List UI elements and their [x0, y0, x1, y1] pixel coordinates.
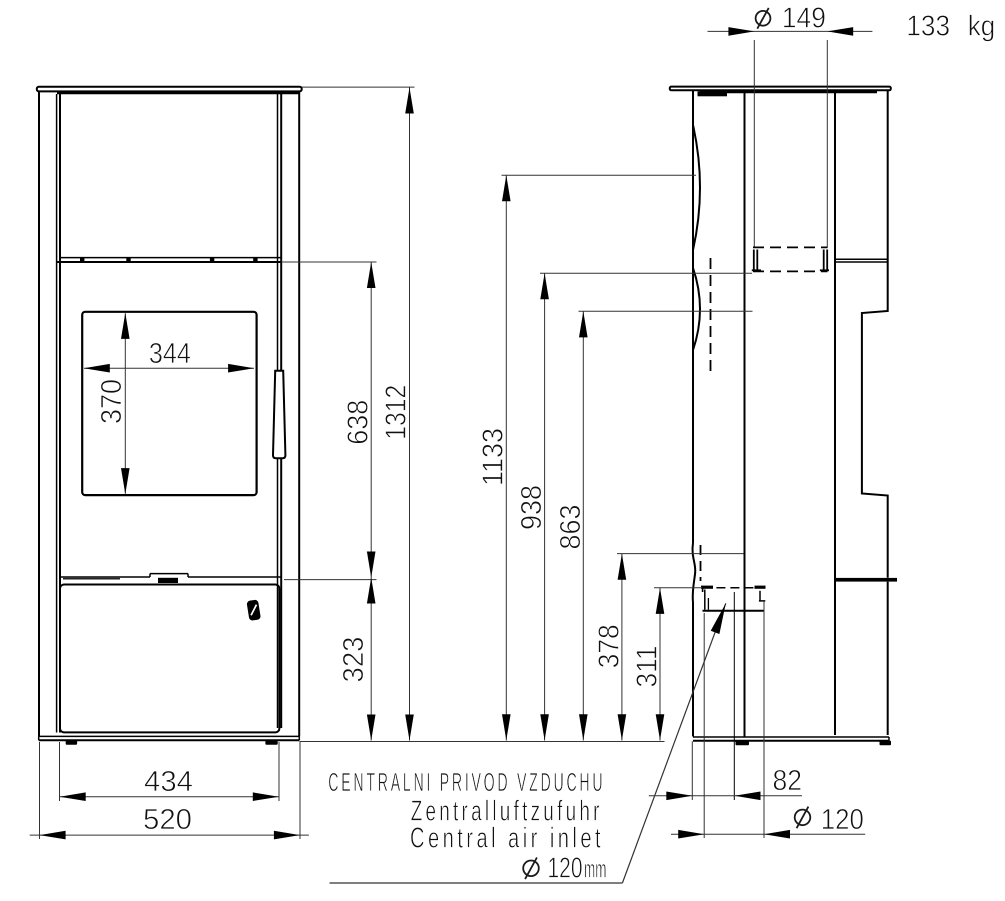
svg-text:mm: mm	[584, 855, 607, 883]
svg-text:CENTRALNI PRIVOD VZDUCHU: CENTRALNI PRIVOD VZDUCHU	[328, 767, 605, 797]
svg-text:120: 120	[821, 804, 864, 836]
svg-text:82: 82	[773, 765, 803, 797]
svg-text:133: 133	[906, 11, 950, 43]
svg-text:344: 344	[149, 338, 191, 370]
svg-text:Central air inlet: Central air inlet	[410, 823, 604, 855]
svg-text:370: 370	[96, 379, 128, 424]
svg-text:120: 120	[548, 852, 583, 884]
svg-text:938: 938	[516, 485, 548, 530]
svg-text:434: 434	[144, 766, 193, 798]
svg-text:1133: 1133	[478, 428, 510, 486]
svg-text:1312: 1312	[381, 385, 413, 440]
svg-text:kg: kg	[968, 11, 996, 43]
svg-text:520: 520	[143, 804, 192, 836]
svg-text:311: 311	[631, 646, 663, 688]
svg-text:863: 863	[555, 505, 587, 550]
svg-text:323: 323	[338, 637, 370, 683]
svg-text:149: 149	[782, 3, 826, 35]
svg-text:638: 638	[342, 400, 374, 445]
svg-text:378: 378	[593, 624, 625, 668]
